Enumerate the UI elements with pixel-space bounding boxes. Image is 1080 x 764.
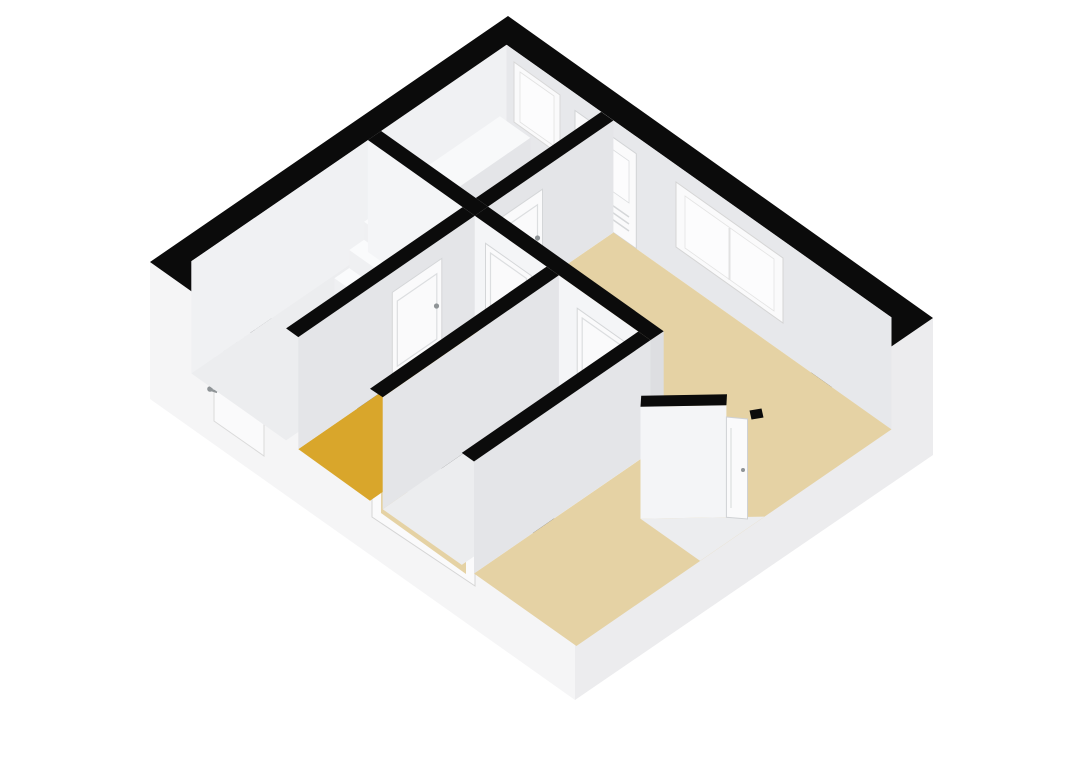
closet-door-handle: [741, 468, 745, 472]
bathroom-door-handle: [535, 235, 540, 240]
closet-wall-face: [641, 405, 727, 519]
floorplan-3d-render: [0, 0, 1080, 764]
closet-door-leaf: [726, 417, 747, 519]
stair-room-door-handle: [434, 303, 439, 308]
closet-wall-cap: [641, 394, 728, 407]
floorplan-stage: [0, 0, 1080, 764]
